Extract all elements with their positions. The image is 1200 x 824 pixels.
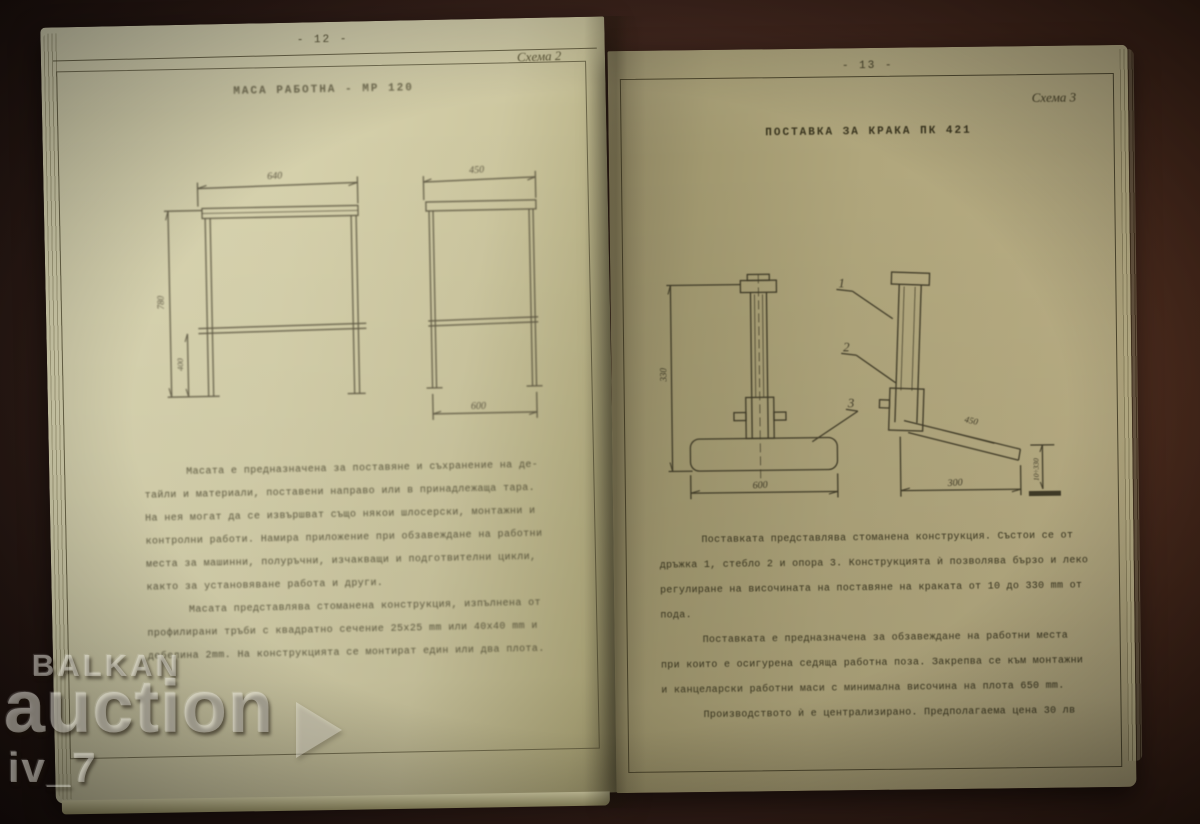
text-line: Производството ѝ е централизирано. Предп… [661,698,1097,728]
right-page-number: - 13 - [608,57,1128,75]
book-right-page: - 13 - Схема 3 ПОСТАВКА ЗА КРАКА ПК 421 … [607,45,1136,793]
dim-side-top: 450 [469,164,485,176]
dim-side-bottom: 600 [471,401,486,412]
dim-front-width: 640 [267,170,283,182]
footrest-drawing: 330 600 [640,248,1098,522]
callout-1: 1 [838,275,845,290]
left-body-text: Масата е предназначена за поставяне и съ… [144,453,566,668]
dim-shelf-height: 400 [175,357,185,371]
dim-adjust-range: 10÷330 [1031,458,1040,481]
page-stack-edges-right [1119,49,1142,761]
callout-3: 3 [847,395,855,410]
right-body-text: Поставката представлява стоманена констр… [659,523,1097,728]
dim-table-height: 780 [156,295,166,309]
callout-2: 2 [843,339,850,354]
page-stack-edges-bottom [62,791,610,814]
book-left-page: - 12 - Схема 2 МАСА РАБОТНА - МР 120 640 [40,16,619,803]
dim-side-base: 300 [946,477,963,489]
photo-background: - 12 - Схема 2 МАСА РАБОТНА - МР 120 640 [0,0,1200,824]
work-table-drawing: 640 780 400 450 [85,145,561,454]
left-scheme-label: Схема 2 [516,48,561,66]
right-scheme-label: Схема 3 [1032,89,1077,106]
dim-footrest-height: 330 [658,367,668,382]
dim-base-width: 600 [752,480,768,492]
text-line: регулиране на височината на поставяне на… [660,573,1096,603]
left-page-number: - 12 - [41,28,605,51]
dim-plate-length: 450 [964,414,980,427]
